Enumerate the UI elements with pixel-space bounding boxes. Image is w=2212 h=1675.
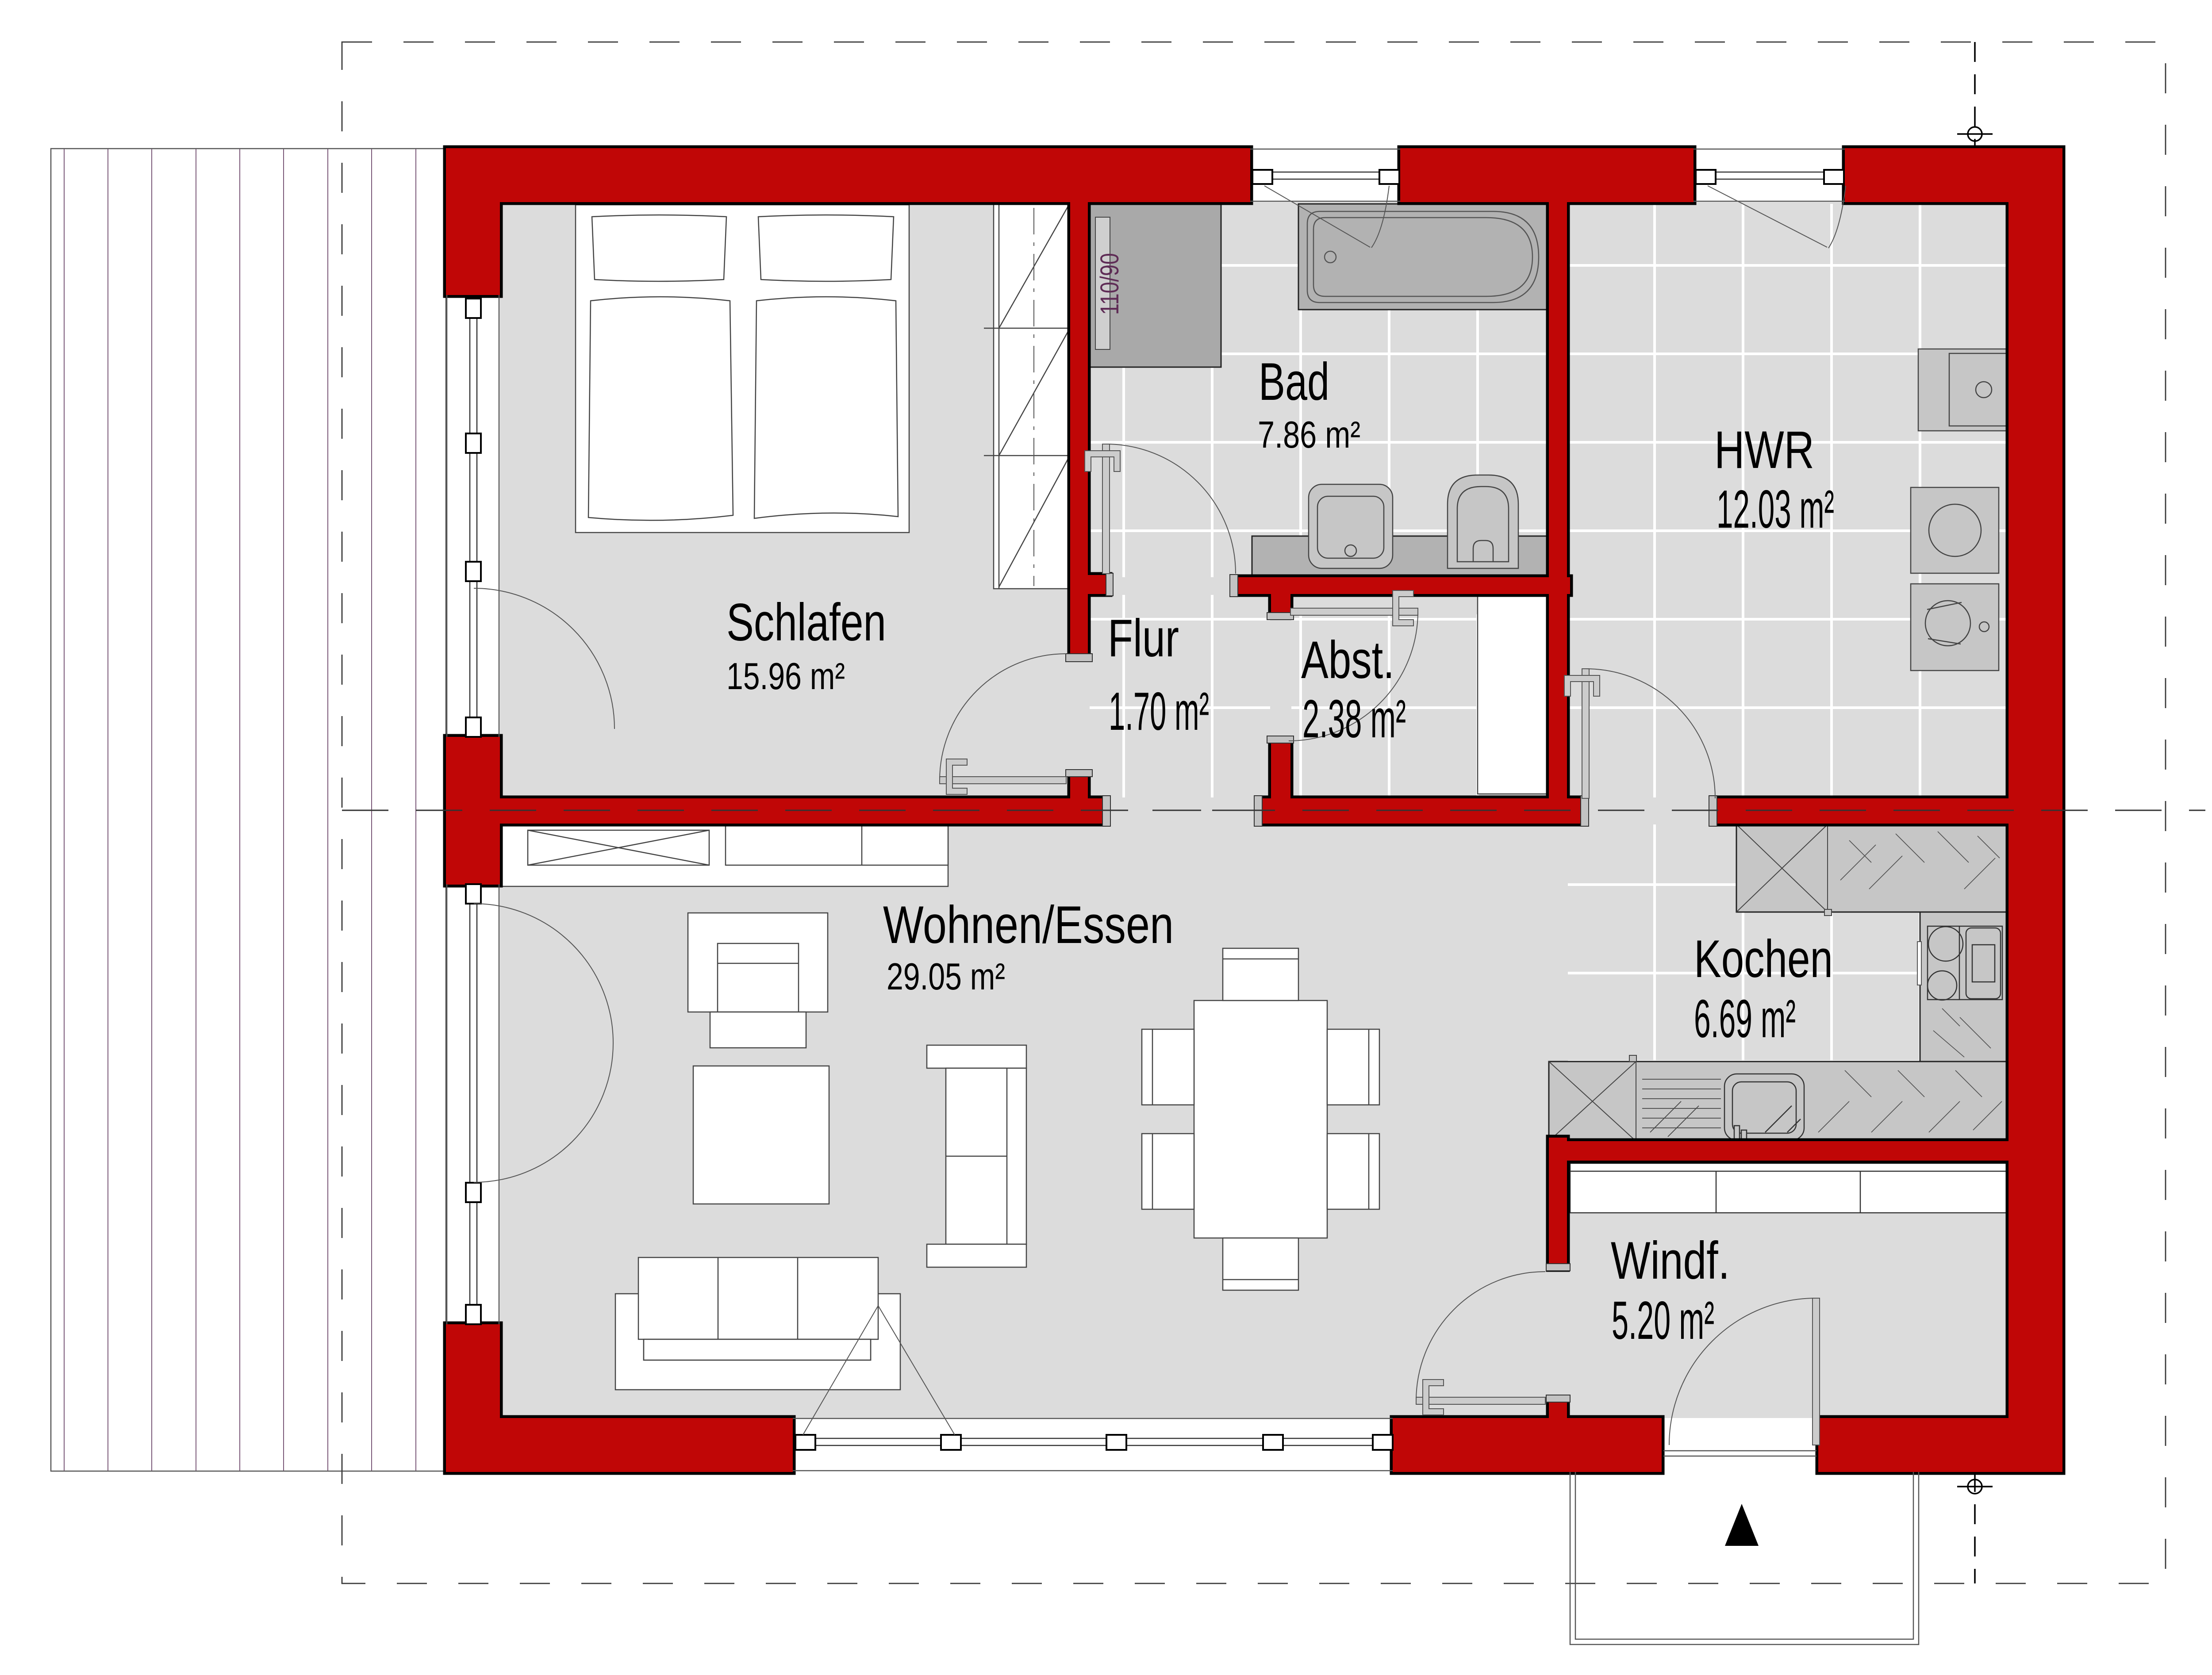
svg-text:HWR: HWR bbox=[1714, 420, 1814, 479]
svg-text:2.38 m²: 2.38 m² bbox=[1302, 689, 1406, 749]
svg-text:6.69 m²: 6.69 m² bbox=[1694, 989, 1796, 1049]
svg-text:Wohnen/Essen: Wohnen/Essen bbox=[883, 895, 1174, 954]
svg-text:1.70 m²: 1.70 m² bbox=[1109, 681, 1209, 741]
svg-text:Flur: Flur bbox=[1108, 609, 1179, 668]
svg-text:12.03 m²: 12.03 m² bbox=[1717, 479, 1834, 539]
svg-text:110/90: 110/90 bbox=[1095, 253, 1124, 315]
svg-text:7.86 m²: 7.86 m² bbox=[1258, 414, 1360, 456]
svg-text:Abst.: Abst. bbox=[1301, 630, 1394, 690]
svg-text:Kochen: Kochen bbox=[1694, 929, 1833, 989]
svg-text:Schlafen: Schlafen bbox=[726, 593, 886, 652]
svg-text:29.05 m²: 29.05 m² bbox=[887, 956, 1005, 998]
svg-text:Bad: Bad bbox=[1259, 352, 1329, 411]
svg-text:5.20 m²: 5.20 m² bbox=[1612, 1290, 1714, 1350]
svg-text:Windf.: Windf. bbox=[1611, 1231, 1730, 1290]
svg-text:15.96 m²: 15.96 m² bbox=[726, 655, 845, 698]
